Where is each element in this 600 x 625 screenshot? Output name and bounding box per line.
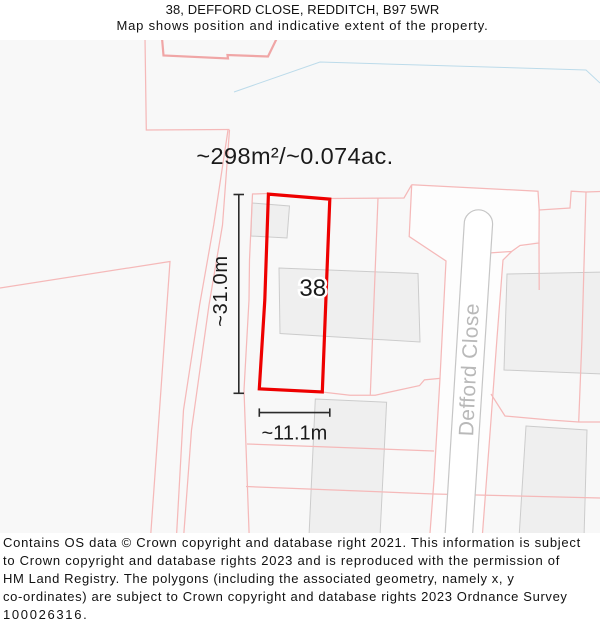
svg-text:~298m²/~0.074ac.: ~298m²/~0.074ac.	[196, 143, 393, 169]
svg-text:~11.1m: ~11.1m	[262, 423, 328, 445]
svg-text:~31.0m: ~31.0m	[210, 255, 232, 326]
svg-text:38: 38	[299, 275, 326, 302]
